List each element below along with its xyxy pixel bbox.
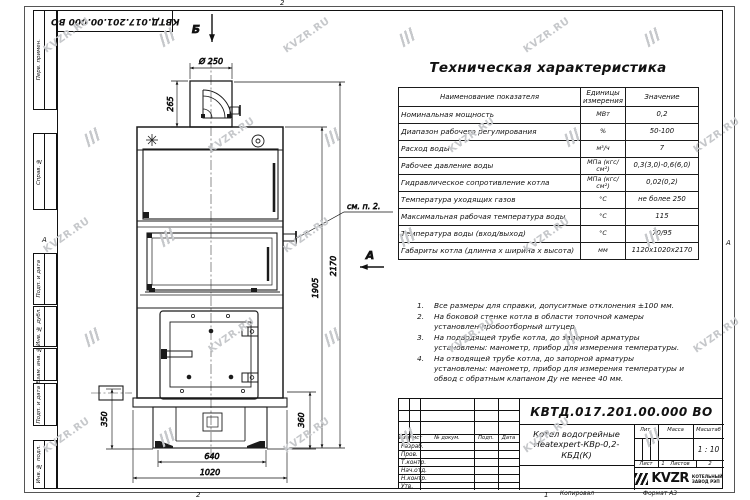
spec-row: Максимальная рабочая температура воды°С1… <box>399 209 699 226</box>
grid-line <box>474 399 475 490</box>
spec-cell: Расход воды <box>399 141 581 158</box>
centerlines <box>91 58 211 455</box>
spec-col-name: Наименование показателя <box>399 88 581 107</box>
notes-list: 1.Все размеры для справки, допуситмые от… <box>417 301 689 385</box>
company-name-line1: КОТЕЛЬНЫЙ <box>692 474 723 479</box>
spec-row: Рабочее давление водыМПа (кгс/см²)0,3(3,… <box>399 158 699 175</box>
spec-cell: Номинальная мощность <box>399 107 581 124</box>
role-tkontr: Т.контр. <box>401 460 426 466</box>
spec-row: Габариты котла (длинна х ширина х высота… <box>399 243 699 260</box>
role-nachotd: Нач.отд. <box>401 468 427 474</box>
spec-cell: 7 <box>626 141 699 158</box>
spec-cell: МВт <box>581 107 626 124</box>
spec-cell: °С <box>581 226 626 243</box>
role-razrab: Разраб. <box>401 444 424 450</box>
role-prov: Пров. <box>401 452 418 458</box>
grid-line <box>650 438 651 460</box>
spec-cell: 0,2 <box>626 107 699 124</box>
spec-cell: 0,3(3,0)-0,6(6,0) <box>626 158 699 175</box>
grid-line <box>399 421 519 422</box>
dim-left-height: 350 <box>100 411 109 426</box>
note-number: 1. <box>417 301 424 311</box>
note-number: 3. <box>417 333 424 343</box>
spec-cell: Максимальная рабочая температура воды <box>399 209 581 226</box>
spec-header-row: Наименование показателя Единицы измерени… <box>399 88 699 107</box>
col-data: Дата <box>498 435 519 441</box>
spec-cell: 50-100 <box>626 124 699 141</box>
note-item: 1.Все размеры для справки, допуситмые от… <box>417 301 689 311</box>
boiler-base <box>133 398 287 448</box>
role-utv: Утв. <box>401 484 413 490</box>
note-item: 2.На боковой стенке котла в области топо… <box>417 312 689 332</box>
spec-row: Гидравлическое сопротивление котлаМПа (к… <box>399 175 699 192</box>
mass-label: Масса <box>658 427 693 433</box>
spec-cell: 1120х1020х2170 <box>626 243 699 260</box>
note-number: 4. <box>417 354 424 364</box>
spec-cell: Гидравлическое сопротивление котла <box>399 175 581 192</box>
grid-line <box>519 465 634 466</box>
spec-cell: не более 250 <box>626 192 699 209</box>
spec-cell: °С <box>581 192 626 209</box>
spec-cell: Габариты котла (длинна х ширина х высота… <box>399 243 581 260</box>
spec-cell: Рабочее давление воды <box>399 158 581 175</box>
col-list: Лист <box>409 435 420 441</box>
product-name-line1: Котел водогрейные <box>533 429 620 440</box>
spec-row: Диапазон рабочего регулирования%50-100 <box>399 124 699 141</box>
dim-total-height: 2170 <box>329 256 338 276</box>
door-handle-icon <box>161 349 192 359</box>
callout-note: см. п. 2. <box>347 202 380 211</box>
spec-row: Расход водым³/ч7 <box>399 141 699 158</box>
scale-label: Масштаб <box>693 427 724 433</box>
dim-body-height: 1905 <box>311 278 320 298</box>
note-item: 3.На подводящей трубе котла, до запорной… <box>417 333 689 353</box>
logo-text: KVZR <box>651 471 689 486</box>
note-text: Все размеры для справки, допуситмые откл… <box>434 301 689 311</box>
loading-door <box>140 233 283 295</box>
spec-cell: Температура уходящих газов <box>399 192 581 209</box>
document-number: КВТД.017.201.00.000 ВО <box>519 399 724 424</box>
view-label-a: А <box>365 249 375 262</box>
dim-right-height: 360 <box>297 412 306 427</box>
spec-row: Температура уходящих газов°Сне более 250 <box>399 192 699 209</box>
grid-line <box>642 438 643 460</box>
spec-cell: 115 <box>626 209 699 226</box>
smoke-elbow-icon <box>201 90 240 118</box>
col-dokum: № докум. <box>420 435 474 441</box>
spec-cell: Температура воды (вход/выход) <box>399 226 581 243</box>
note-item: 4.На отводящей трубе котла, до запорной … <box>417 354 689 384</box>
note-text: На отводящей трубе котла, до запорной ар… <box>434 354 689 384</box>
scale-value: 1 : 10 <box>693 438 724 460</box>
spec-cell: % <box>581 124 626 141</box>
sheets-value: 2 <box>696 461 724 467</box>
note-text: На подводящей трубе котла, до запорной а… <box>434 333 689 353</box>
dimensions: Ø 250 265 Б см. п. 2. 350 360 <box>100 14 393 483</box>
grid-line <box>498 399 499 490</box>
product-name: Котел водогрейные Heatexpert-КВр-0,2- КБ… <box>519 424 634 465</box>
dim-total-width: 1020 <box>200 468 220 477</box>
spec-cell: 70/95 <box>626 226 699 243</box>
company-name-line2: ЗАВОД РЭП <box>692 479 723 484</box>
lifting-eye-icon <box>252 135 264 147</box>
sheet-label: Лист <box>634 461 658 467</box>
spec-cell: МПа (кгс/см²) <box>581 158 626 175</box>
upper-door <box>143 149 278 219</box>
spec-cell: МПа (кгс/см²) <box>581 175 626 192</box>
col-podp: Подп. <box>474 435 498 441</box>
dim-diameter: Ø 250 <box>198 56 223 66</box>
sheets-label: Листов <box>667 461 693 467</box>
spec-table: Наименование показателя Единицы измерени… <box>398 87 699 260</box>
drawing-sheet: 2 А А 2 1 Перв. примен. Справ. № Подп. и… <box>0 0 750 500</box>
col-izm: Изм <box>399 435 409 441</box>
spec-col-value: Значение <box>626 88 699 107</box>
note-number: 2. <box>417 312 424 322</box>
spec-table-title: Техническая характеристика <box>398 60 698 76</box>
spec-row: Номинальная мощностьМВт0,2 <box>399 107 699 124</box>
grid-line <box>399 410 519 411</box>
spec-cell: Диапазон рабочего регулирования <box>399 124 581 141</box>
company-name: КОТЕЛЬНЫЙ ЗАВОД РЭП <box>692 474 723 484</box>
spec-row: Температура воды (вход/выход)°С70/95 <box>399 226 699 243</box>
company-logo: KVZR КОТЕЛЬНЫЙ ЗАВОД РЭП <box>634 467 724 490</box>
spec-cell: мм <box>581 243 626 260</box>
section-label-b: Б <box>192 23 200 36</box>
note-text: На боковой стенке котла в области топочн… <box>434 312 689 332</box>
lit-label: Лит. <box>634 427 658 433</box>
dim-base-width: 640 <box>204 452 219 461</box>
furnace-door <box>160 311 258 399</box>
format-label: Формат А3 <box>620 490 700 497</box>
side-fitting <box>283 231 296 244</box>
door-hinges-icon <box>242 327 258 382</box>
spec-cell: м³/ч <box>581 141 626 158</box>
spec-col-units: Единицы измерения <box>581 88 626 107</box>
spec-cell: 0,02(0,2) <box>626 175 699 192</box>
dim-chimney-height: 265 <box>166 96 175 111</box>
kvzr-logo-icon <box>635 473 648 485</box>
spec-cell: °С <box>581 209 626 226</box>
title-block: Изм Лист № докум. Подп. Дата Разраб. Про… <box>398 398 723 489</box>
datum-cross-icon <box>146 134 158 146</box>
role-nkontr: Н.контр. <box>401 476 427 482</box>
grid-line <box>399 482 519 483</box>
product-name-line2: Heatexpert-КВр-0,2- КБД(К) <box>519 439 634 460</box>
copy-label: Копировал <box>537 490 617 497</box>
